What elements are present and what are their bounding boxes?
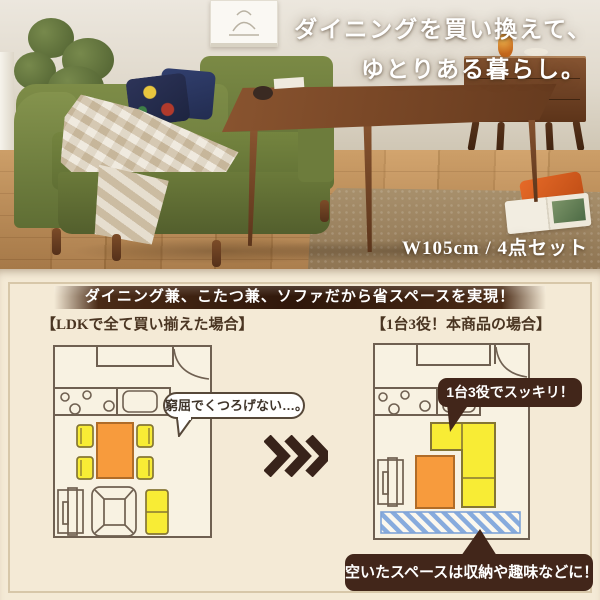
- left-plan-bubble: 窮屈でくつろげない…。: [163, 392, 305, 419]
- sofa-leg: [212, 240, 221, 267]
- right-plan-title: 【1台3役！本商品の場合】: [371, 313, 551, 334]
- right-bubble-tail: [444, 404, 474, 434]
- right-floor-plan: [373, 343, 530, 540]
- chair: [77, 457, 93, 479]
- sofa-leg: [112, 234, 121, 261]
- mug: [253, 86, 273, 100]
- sofa-leg: [52, 228, 61, 255]
- hero-photo: ダイニングを買い換えて、 ゆとりある暮らし。 W105cm / 4点セット: [0, 0, 600, 269]
- left-plan-title: 【LDKで全て買い揃えた場合】: [41, 313, 254, 334]
- dining-table: [97, 423, 133, 478]
- wall-art-frame: [210, 0, 278, 47]
- right-plan-bubble: 1台3役でスッキリ！: [438, 378, 582, 407]
- size-caption: W105cm / 4点セット: [402, 233, 588, 260]
- kotatsu-dining-table: [416, 456, 454, 508]
- headline-line2: ゆとりある暮らし。: [361, 50, 586, 84]
- chair: [77, 425, 93, 447]
- headline-line1: ダイニングを買い換えて、: [294, 10, 592, 44]
- triple-chevron-right-icon: [264, 435, 328, 477]
- book: [274, 77, 305, 89]
- bottom-banner-tail: [458, 527, 500, 557]
- chair: [137, 457, 153, 479]
- sofa-leg: [320, 200, 329, 222]
- left-floor-plan: [53, 345, 212, 538]
- comparison-section: ダイニング兼、こたつ兼、ソファだから省スペースを実現！ 【LDKで全て買い揃えた…: [0, 269, 600, 600]
- left-bubble-tail: [176, 417, 194, 437]
- product-banner: ダイニングを買い換えて、 ゆとりある暮らし。 W105cm / 4点セット ダイ…: [0, 0, 600, 600]
- chair: [137, 425, 153, 447]
- frame-sketch: [211, 1, 277, 43]
- section-banner: ダイニング兼、こたつ兼、ソファだから省スペースを実現！: [54, 286, 546, 309]
- free-space-note: 空いたスペースは収納や趣味などに！: [345, 554, 593, 591]
